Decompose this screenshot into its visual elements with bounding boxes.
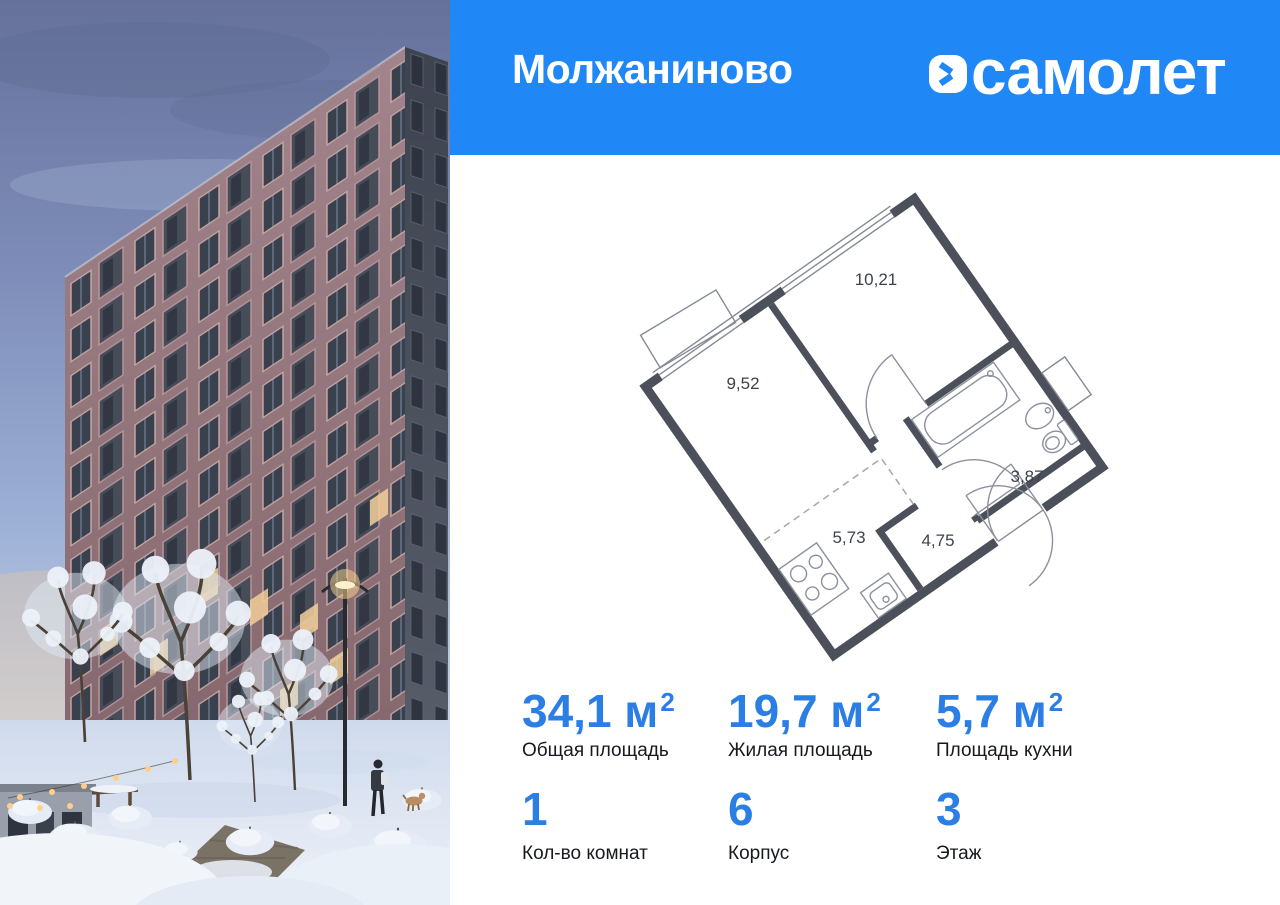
stat-living-area: 19,7 м2 Жилая площадь [728,679,938,760]
samolet-wordmark: самолет [971,40,1226,104]
stat-building-number: 6 Корпус [728,786,938,863]
project-title: Молжаниново [512,49,793,90]
samolet-chevron-icon [929,55,967,93]
building-photo [0,0,450,905]
listing-card: Молжаниново самолет [0,0,1280,905]
stat-value-living-area: 19,7 м2 [728,679,938,734]
stat-kitchen-area: 5,7 м2 Площадь кухни [936,679,1146,760]
stat-label-total-area: Общая площадь [522,741,732,760]
floor-plan: 10,21 9,52 3,87 5,73 4,75 [620,180,1120,680]
stat-label-kitchen-area: Площадь кухни [936,741,1146,760]
stat-value-kitchen-area: 5,7 м2 [936,679,1146,734]
stat-rooms-count: 1 Кол-во комнат [522,786,732,863]
room-area-label-hallway: 4,75 [921,531,954,550]
stat-total-area: 34,1 м2 Общая площадь [522,679,732,760]
room-area-label-bathroom: 3,87 [1010,467,1043,486]
right-panel: Молжаниново самолет [450,0,1280,905]
stat-label-floor-number: Этаж [936,844,1146,863]
stat-label-living-area: Жилая площадь [728,741,938,760]
room-area-label-bedroom: 10,21 [855,270,898,289]
stat-label-rooms-count: Кол-во комнат [522,844,732,863]
stat-value-rooms-count: 1 [522,786,732,832]
header-bar: Молжаниново самолет [450,0,1280,155]
stat-floor-number: 3 Этаж [936,786,1146,863]
stat-value-total-area: 34,1 м2 [522,679,732,734]
stat-value-floor-number: 3 [936,786,1146,832]
stat-label-building-number: Корпус [728,844,938,863]
room-area-label-kitchen: 5,73 [832,528,865,547]
room-area-label-living: 9,52 [726,374,759,393]
stat-value-building-number: 6 [728,786,938,832]
